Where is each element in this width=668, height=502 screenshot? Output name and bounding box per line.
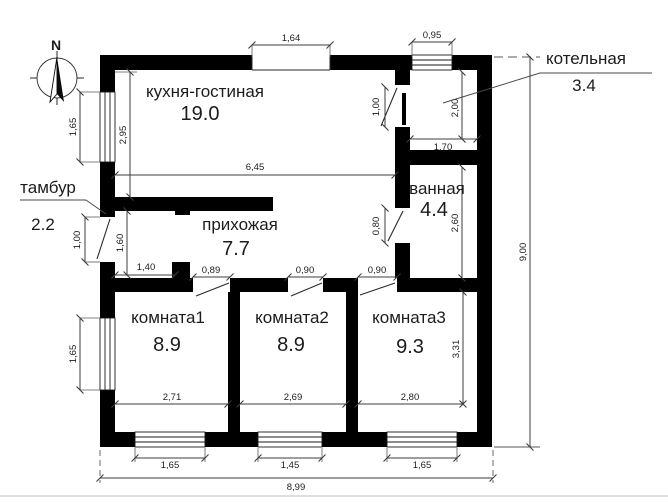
wall-vestibule-stub-top xyxy=(175,197,190,215)
dim-hall-door3: 0,90 xyxy=(368,265,387,276)
dim-room3-depth: 3,31 xyxy=(451,340,462,359)
dim-room1-width: 2,71 xyxy=(163,392,182,403)
boiler-area: 3.4 xyxy=(572,76,596,95)
dim-left-window-bottom: 1,65 xyxy=(68,345,79,364)
bath-label: ванная xyxy=(409,179,465,198)
opening-vestibule-hall xyxy=(175,215,190,262)
wall-room2-room3 xyxy=(346,278,358,447)
window-bottom-1 xyxy=(135,432,205,447)
dim-hall-door2: 0,90 xyxy=(296,265,315,276)
window-boiler xyxy=(412,55,452,70)
dim-hall-door1: 0,89 xyxy=(202,265,221,276)
bath-area: 4.4 xyxy=(420,199,448,221)
compass: N xyxy=(30,37,84,105)
dim-left-window-top: 1,65 xyxy=(68,118,79,137)
wall-room1-room2 xyxy=(228,278,240,447)
dim-vestibule-width: 1,40 xyxy=(137,262,156,273)
dim-bath-depth: 2,60 xyxy=(450,214,461,233)
dimension-labels: 1,64 0,95 9,00 8,99 1,65 1,45 1,65 1,65 … xyxy=(68,30,529,493)
hall-area: 7.7 xyxy=(222,238,250,260)
exterior-walls xyxy=(100,55,492,447)
floor-plan-page: 1,64 0,95 9,00 8,99 1,65 1,45 1,65 1,65 … xyxy=(0,0,668,502)
room1-area: 8.9 xyxy=(153,334,181,356)
dim-vestibule-depth: 1,60 xyxy=(115,234,126,253)
dim-overall-height: 9,00 xyxy=(518,243,529,262)
boiler-door-panel xyxy=(402,93,406,125)
wall-hall-top xyxy=(115,197,273,211)
floor-plan-drawing: 1,64 0,95 9,00 8,99 1,65 1,45 1,65 1,65 … xyxy=(0,0,668,502)
dim-kitchen-width: 6,45 xyxy=(246,162,265,173)
window-bottom-3 xyxy=(387,432,457,447)
kitchen-area: 19.0 xyxy=(181,103,220,125)
north-needle-light xyxy=(50,57,57,102)
dim-top-opening: 1,64 xyxy=(282,33,301,44)
dim-bottom-window3: 1,65 xyxy=(413,460,432,471)
room3-label: комната3 xyxy=(372,308,446,327)
wall-right xyxy=(477,55,492,447)
hall-label: прихожая xyxy=(202,215,278,234)
dim-bath-door: 0,80 xyxy=(371,217,382,236)
room3-area: 9.3 xyxy=(396,336,424,358)
kitchen-label: кухня-гостиная xyxy=(146,82,264,101)
opening-bath-door xyxy=(395,208,410,243)
north-label: N xyxy=(51,37,61,53)
dim-kitchen-depth: 2,95 xyxy=(118,126,129,145)
room1-label: комната1 xyxy=(131,308,205,327)
dim-boiler-door: 1,00 xyxy=(371,98,382,117)
room2-label: комната2 xyxy=(255,308,329,327)
dim-bottom-window1: 1,65 xyxy=(161,460,180,471)
opening-entry-door xyxy=(100,217,115,262)
window-left-bottom xyxy=(100,318,115,390)
vestibule-label: тамбур xyxy=(20,178,76,197)
dim-room2-width: 2,69 xyxy=(284,392,303,403)
opening-room3-door xyxy=(358,278,397,292)
dim-boiler-window: 0,95 xyxy=(423,30,442,41)
boiler-door-leaf xyxy=(381,88,397,126)
vestibule-callout: тамбур 2.2 xyxy=(20,178,106,234)
dim-overall-width: 8,99 xyxy=(287,482,306,493)
window-bottom-2 xyxy=(258,432,322,447)
north-needle-dark xyxy=(57,57,64,102)
opening-top xyxy=(252,55,330,70)
boiler-label: котельная xyxy=(546,49,626,68)
dim-room3-width: 2,80 xyxy=(401,392,420,403)
dim-boiler-depth: 2,00 xyxy=(450,99,461,118)
dim-boiler-width: 1,70 xyxy=(434,142,453,153)
vestibule-area: 2.2 xyxy=(31,215,55,234)
interior-walls xyxy=(100,55,477,447)
dim-entry-door: 1,00 xyxy=(72,231,83,250)
dim-bottom-window2: 1,45 xyxy=(281,460,300,471)
window-left-top xyxy=(100,92,115,162)
room2-area: 8.9 xyxy=(277,334,305,356)
